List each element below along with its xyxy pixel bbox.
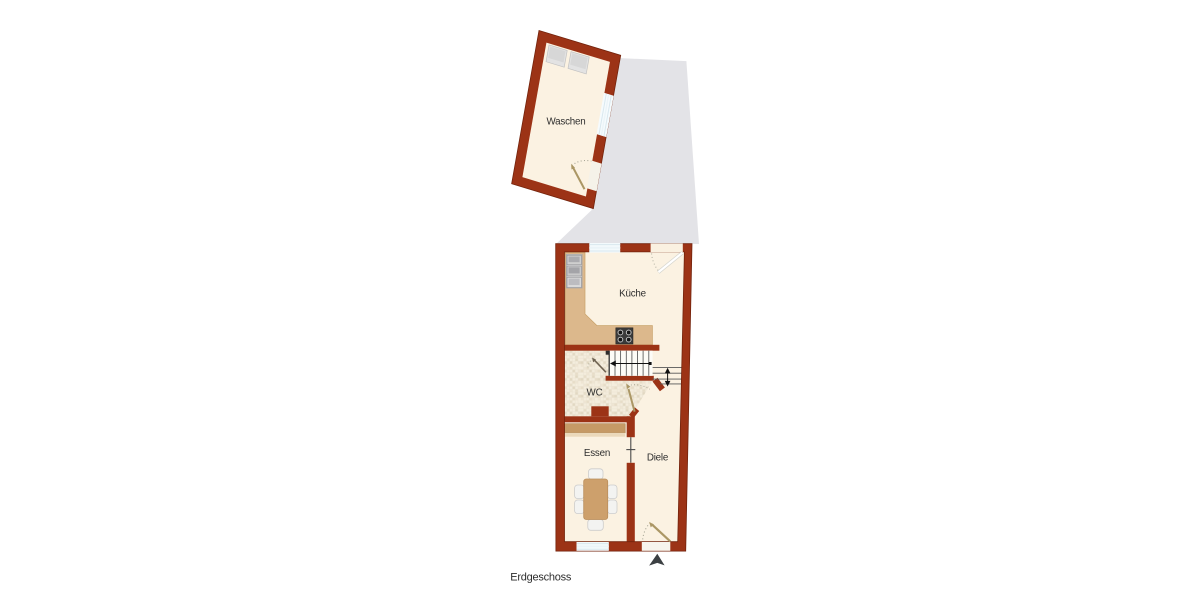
svg-text:WC: WC	[587, 387, 603, 398]
svg-text:Diele: Diele	[647, 453, 669, 464]
svg-text:Essen: Essen	[584, 448, 610, 459]
svg-text:Waschen: Waschen	[546, 117, 585, 128]
svg-text:Küche: Küche	[619, 288, 647, 299]
svg-text:Erdgeschoss: Erdgeschoss	[510, 572, 572, 584]
